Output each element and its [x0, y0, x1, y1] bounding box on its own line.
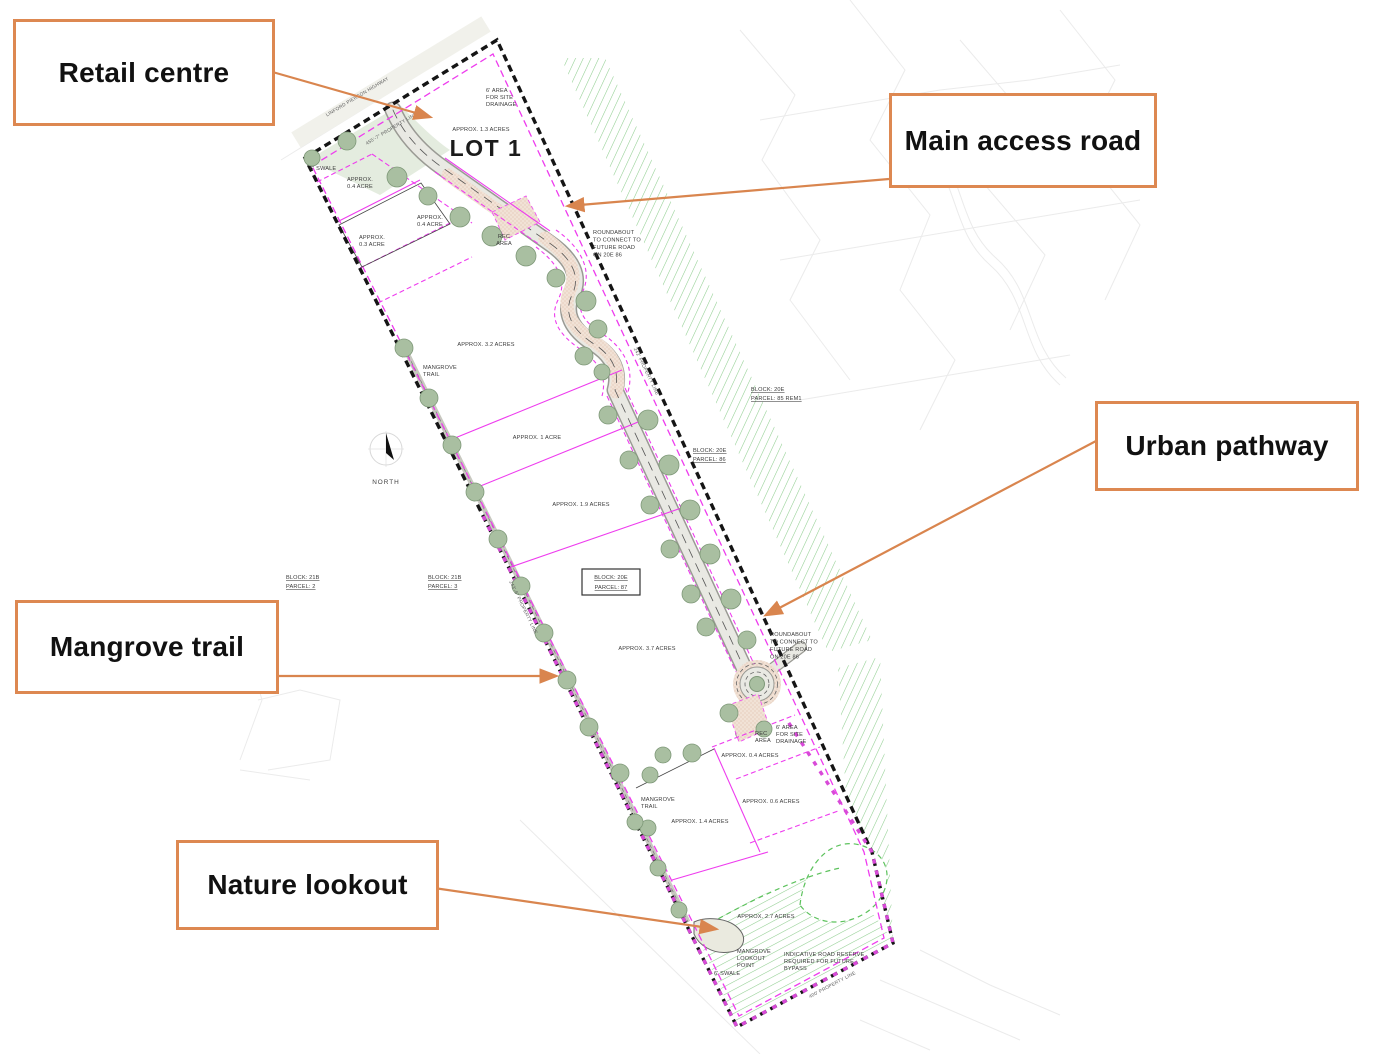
acre-03-1: APPROX.	[359, 235, 385, 241]
road-reserve-note-1: INDICATIVE ROAD RESERVE	[784, 952, 864, 958]
drainage-bot-2: FOR SITE	[776, 732, 803, 738]
acre-04b-1: APPROX.	[417, 215, 443, 221]
roundabout-note-top-3: FUTURE ROAD	[593, 245, 635, 251]
acre-14: APPROX. 1.4 ACRES	[671, 819, 728, 825]
acre-03-2: 0.3 ACRE	[359, 242, 385, 248]
acre-19: APPROX. 1.9 ACRES	[552, 502, 609, 508]
callout-retail-centre-label: Retail centre	[59, 57, 230, 89]
drainage-top-3: DRAINAGE	[486, 102, 517, 108]
block-20e-86-2: PARCEL: 86	[693, 457, 726, 463]
acre-04c: APPROX. 0.4 ACRES	[721, 753, 778, 759]
lookout-label-3: POINT	[737, 963, 755, 969]
acre-04a-2: 0.4 ACRE	[347, 184, 373, 190]
acre-04a-1: APPROX.	[347, 177, 373, 183]
rec-bot-2: AREA	[755, 738, 771, 744]
roundabout-note-bot-3: FUTURE ROAD	[770, 647, 812, 653]
parcel-87-box	[582, 569, 640, 595]
lot1-acreage: APPROX. 1.3 ACRES	[452, 127, 509, 133]
block-21b-2a: BLOCK: 21B	[286, 575, 320, 581]
roundabout-note-bot-2: TO CONNECT TO	[770, 640, 818, 646]
roundabout-note-top-1: ROUNDABOUT	[593, 230, 635, 236]
mangrove-trail-label-1a: MANGROVE	[423, 365, 457, 371]
callout-nature-lookout-label: Nature lookout	[207, 869, 407, 901]
drainage-bot-3: DRAINAGE	[776, 739, 807, 745]
lookout-label-1: MANGROVE	[737, 949, 771, 955]
callout-urban-pathway-label: Urban pathway	[1125, 430, 1328, 462]
acre-37: APPROX. 3.7 ACRES	[618, 646, 675, 652]
block-21b-3a: BLOCK: 21B	[428, 575, 462, 581]
block-20e-87-1: BLOCK: 20E	[594, 575, 628, 581]
swale-bottom: 6' SWALE	[714, 971, 740, 977]
callout-main-access-road-label: Main access road	[905, 125, 1142, 157]
north-label: NORTH	[372, 479, 400, 486]
block-21b-3b: PARCEL: 3	[428, 584, 458, 590]
site-plan-page: NORTH LINFORD PIERSON HIGHWAY 455'-7" PR…	[0, 0, 1383, 1054]
mangrove-trail-label-2b: TRAIL	[641, 804, 658, 810]
roundabout-note-bot-1: ROUNDABOUT	[770, 632, 812, 638]
rec-top-1: REC	[498, 234, 510, 240]
block-20e-85-1: BLOCK: 20E	[751, 387, 785, 393]
acre-06: APPROX. 0.6 ACRES	[742, 799, 799, 805]
road-reserve-note-2: REQUIRED FOR FUTURE	[784, 959, 854, 965]
road-reserve-note-3: BYPASS	[784, 966, 807, 972]
mangrove-trail-label-2a: MANGROVE	[641, 797, 675, 803]
rec-bot-1: REC	[755, 731, 767, 737]
acre-04b-2: 0.4 ACRE	[417, 222, 443, 228]
roundabout-note-top-2: TO CONNECT TO	[593, 238, 641, 244]
block-20e-85-2: PARCEL: 85 REM1	[751, 396, 802, 402]
callout-main-access-road: Main access road	[889, 93, 1157, 188]
main-access-connector	[568, 179, 889, 206]
drainage-bot-1: 6' AREA	[776, 725, 798, 731]
drainage-top-1: 6' AREA	[486, 88, 508, 94]
block-20e-87-2: PARCEL: 87	[595, 585, 628, 591]
mangrove-trail-label-1b: TRAIL	[423, 372, 440, 378]
block-20e-86-1: BLOCK: 20E	[693, 448, 727, 454]
acre-27: APPROX. 2.7 ACRES	[737, 914, 794, 920]
lookout-label-2: LOOKOUT	[737, 956, 766, 962]
swale-top: 6' SWALE	[310, 166, 336, 172]
drainage-top-2: FOR SITE	[486, 95, 513, 101]
callout-nature-lookout: Nature lookout	[176, 840, 439, 930]
callout-urban-pathway: Urban pathway	[1095, 401, 1359, 491]
block-21b-2b: PARCEL: 2	[286, 584, 316, 590]
lot1-title: LOT 1	[450, 135, 523, 161]
callout-retail-centre: Retail centre	[13, 19, 275, 126]
acre-1: APPROX. 1 ACRE	[513, 435, 562, 441]
callout-mangrove-trail-label: Mangrove trail	[50, 631, 244, 663]
roundabout-note-bot-4: ON 20E 86	[770, 655, 799, 661]
roundabout-note-top-4: ON 20E 86	[593, 253, 622, 259]
acre-32: APPROX. 3.2 ACRES	[457, 342, 514, 348]
callout-mangrove-trail: Mangrove trail	[15, 600, 279, 694]
rec-top-2: AREA	[496, 241, 512, 247]
north-arrow: NORTH	[368, 431, 404, 486]
